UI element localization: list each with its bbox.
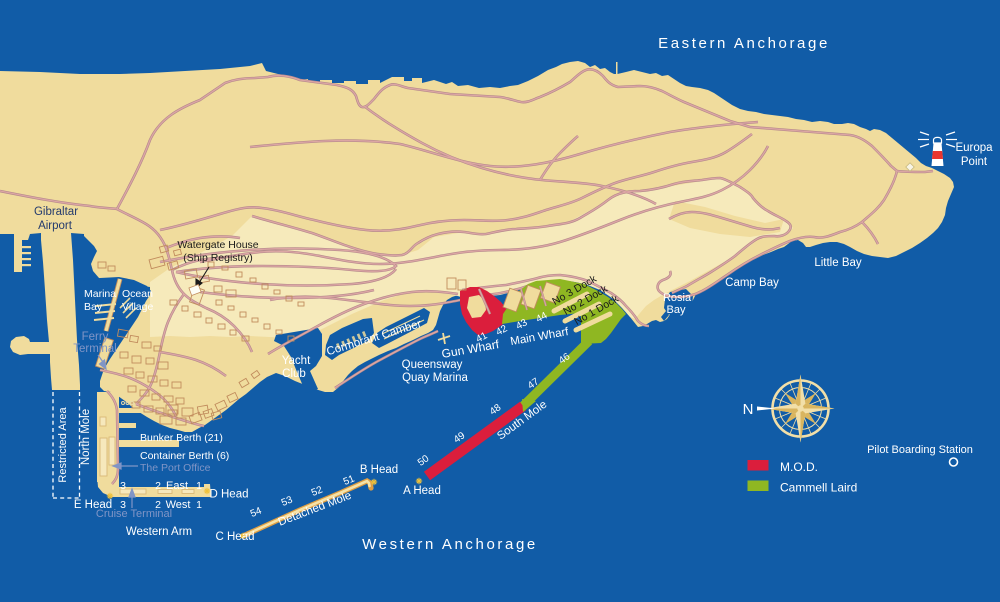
- svg-text:Cammell Laird: Cammell Laird: [780, 481, 857, 495]
- svg-text:C Head: C Head: [216, 531, 255, 543]
- svg-text:D Head: D Head: [210, 489, 249, 501]
- svg-text:N: N: [743, 401, 754, 418]
- svg-text:2: 2: [155, 480, 161, 492]
- svg-text:Bay: Bay: [667, 304, 686, 316]
- svg-text:Camp Bay: Camp Bay: [725, 277, 779, 289]
- svg-text:Restricted Area: Restricted Area: [57, 407, 69, 483]
- svg-text:Eastern Anchorage: Eastern Anchorage: [658, 35, 830, 52]
- svg-text:Rosia: Rosia: [663, 292, 692, 304]
- svg-text:3: 3: [120, 499, 126, 511]
- svg-text:Europa: Europa: [955, 142, 993, 154]
- svg-text:Club: Club: [282, 368, 306, 380]
- svg-text:North Mole: North Mole: [80, 409, 92, 465]
- svg-text:Village: Village: [122, 301, 153, 313]
- svg-text:Ferry: Ferry: [82, 331, 109, 343]
- svg-text:A Head: A Head: [403, 485, 441, 497]
- svg-text:The Port Office: The Port Office: [140, 462, 211, 474]
- svg-text:1: 1: [196, 480, 202, 492]
- svg-text:E Head: E Head: [74, 499, 112, 511]
- svg-text:East: East: [166, 480, 188, 492]
- svg-text:Bay: Bay: [84, 301, 103, 313]
- svg-text:Marina: Marina: [84, 288, 116, 300]
- svg-text:3: 3: [120, 480, 126, 492]
- svg-text:Western Anchorage: Western Anchorage: [362, 536, 538, 553]
- svg-text:B Head: B Head: [360, 464, 398, 476]
- svg-text:Airport: Airport: [38, 220, 73, 232]
- svg-text:Quay Marina: Quay Marina: [402, 372, 468, 384]
- svg-text:Point: Point: [961, 156, 988, 168]
- svg-text:(Ship Registry): (Ship Registry): [183, 252, 252, 264]
- svg-text:Queensway: Queensway: [402, 359, 463, 371]
- svg-text:Yacht: Yacht: [282, 355, 311, 367]
- svg-text:Ocean: Ocean: [122, 288, 153, 300]
- svg-text:Bunker Berth (21): Bunker Berth (21): [140, 432, 223, 444]
- svg-text:Gibraltar: Gibraltar: [34, 206, 78, 218]
- svg-text:Western Arm: Western Arm: [126, 526, 192, 538]
- svg-text:Little Bay: Little Bay: [814, 257, 862, 269]
- svg-text:2: 2: [155, 499, 161, 511]
- svg-text:1: 1: [196, 499, 202, 511]
- svg-text:Terminal: Terminal: [73, 343, 116, 355]
- svg-text:Watergate House: Watergate House: [177, 239, 258, 251]
- svg-text:Container Berth (6): Container Berth (6): [140, 450, 229, 462]
- svg-text:West: West: [166, 499, 191, 511]
- svg-text:M.O.D.: M.O.D.: [780, 460, 818, 474]
- svg-text:Pilot Boarding Station: Pilot Boarding Station: [867, 444, 973, 456]
